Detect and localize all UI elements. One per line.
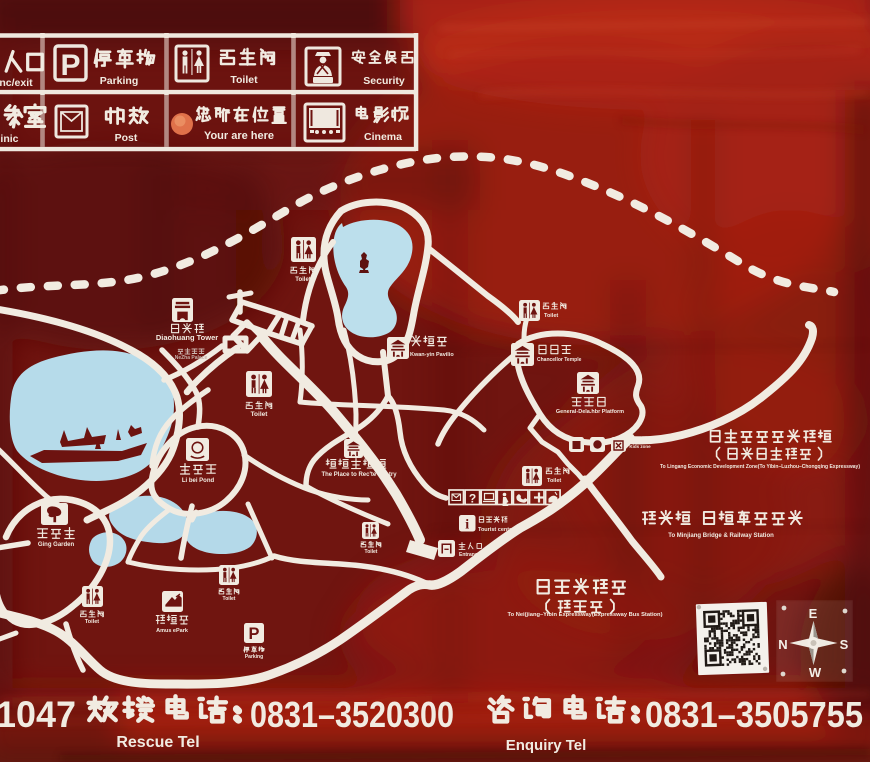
svg-text:Li bei Pond: Li bei Pond [182,478,215,484]
svg-text:General-Dela.hbr Platform: General-Dela.hbr Platform [556,409,624,415]
svg-text:N: N [778,637,787,652]
svg-text:Ging Garden: Ging Garden [38,542,75,548]
svg-text:Your are here: Your are here [204,130,274,142]
svg-text:NeZha Palace: NeZha Palace [175,355,208,361]
svg-text:To Minjiang Bridge & Railway S: To Minjiang Bridge & Railway Station [668,533,774,539]
svg-text:nc/exit: nc/exit [0,77,33,89]
svg-text:Kids zone: Kids zone [629,444,651,449]
svg-text:Toilet: Toilet [544,313,558,319]
svg-text:S: S [840,637,849,652]
svg-text:Toilet: Toilet [223,596,236,602]
svg-text:Amus ePark: Amus ePark [156,628,189,634]
svg-text:Diaohuang Tower: Diaohuang Tower [156,333,218,342]
svg-text:P: P [60,49,80,82]
svg-text:Entrance: Entrance [459,552,481,558]
svg-text:Toilet: Toilet [547,478,561,484]
svg-text:Toilet: Toilet [295,277,311,283]
svg-text:i: i [465,518,469,533]
svg-text:0831–3505755: 0831–3505755 [645,694,863,735]
svg-text:?: ? [469,492,476,506]
svg-text:0831–3520300: 0831–3520300 [250,694,454,735]
svg-text:To Nei(jiang–Yibin Expressway(: To Nei(jiang–Yibin Expressway(Expressway… [508,612,663,618]
svg-text:W: W [809,665,822,680]
svg-text:Cinema: Cinema [364,131,402,143]
svg-text:To Lingang Economic Developmen: To Lingang Economic Development Zone(To … [660,464,860,470]
svg-text:Toilet: Toilet [365,549,378,555]
svg-text:Post: Post [115,132,138,144]
svg-text:Toilet: Toilet [251,411,269,418]
svg-text:Toilet: Toilet [85,619,99,625]
svg-text:Chancellor Temple: Chancellor Temple [537,357,582,363]
svg-text:Security: Security [363,75,405,87]
svg-text:Kwan-yin Pavilio: Kwan-yin Pavilio [410,352,454,358]
svg-text:The Place to Rec'te Poetry: The Place to Rec'te Poetry [321,472,397,478]
svg-text:linic: linic [0,133,19,145]
svg-text:Parking: Parking [100,75,139,87]
svg-text:Tourist centre: Tourist centre [478,527,514,533]
svg-text:P: P [249,625,260,643]
svg-text:E: E [809,606,818,621]
svg-text:1047: 1047 [0,694,76,735]
svg-text:Toilet: Toilet [230,74,258,86]
svg-text:Rescue Tel: Rescue Tel [116,734,199,751]
svg-text:Parking: Parking [245,654,263,660]
svg-text:Enquiry Tel: Enquiry Tel [506,737,587,754]
